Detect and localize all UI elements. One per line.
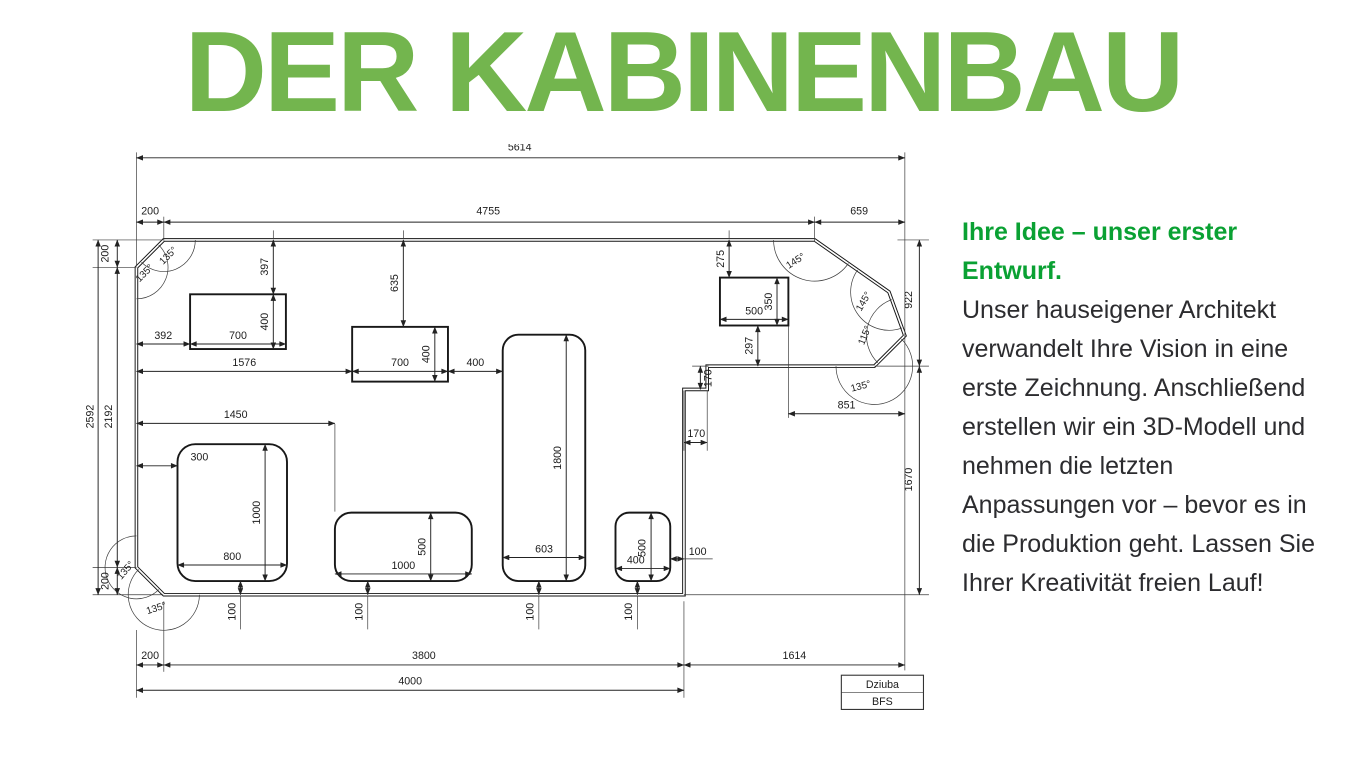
dim-rect5-height: 1000 xyxy=(251,501,263,525)
dim-top-chamfer: 200 xyxy=(141,206,159,218)
dim-rect1-height: 400 xyxy=(259,313,271,331)
dim-rect2-gap: 400 xyxy=(466,357,484,369)
dim-rect5-width: 800 xyxy=(223,551,241,563)
dim-rect4-height: 500 xyxy=(636,539,648,557)
dim-bottom-edge: 3800 xyxy=(412,650,436,662)
dim-left-chamfer-bottom: 200 xyxy=(99,572,111,590)
slide: DER KABINENBAU xyxy=(0,0,1366,768)
dimension-labels-vertical: 2592 2192 200 200 922 1670 397 400 635 4… xyxy=(85,245,916,621)
dim-rect2-width: 700 xyxy=(391,357,409,369)
dim-rect2-height: 400 xyxy=(421,345,433,363)
dim-bottom-chamfer: 200 xyxy=(141,650,159,662)
dim-bottom-gap-2: 100 xyxy=(354,603,366,621)
dim-right-upper: 922 xyxy=(903,291,915,309)
extension-lines xyxy=(93,152,929,697)
dim-rect3-offset-top: 275 xyxy=(715,250,727,268)
angle-bottom-left-b: 135° xyxy=(145,600,168,617)
dim-rect6-width: 1000 xyxy=(391,560,415,572)
dim-rect6-height: 500 xyxy=(417,538,429,556)
dim-rect1-offset: 392 xyxy=(154,330,172,342)
angle-arcs xyxy=(105,240,913,630)
dim-rect3-offset-bottom: 297 xyxy=(744,337,756,355)
side-heading: Ihre Idee – unser erster Entwurf. xyxy=(962,213,1330,291)
dim-left-wall: 2192 xyxy=(103,405,115,429)
dim-step-height: 170 xyxy=(702,369,714,387)
angle-right-115: 115° xyxy=(857,324,875,346)
title-block-author: Dziuba xyxy=(866,679,899,691)
dimension-labels: 5614 200 4755 659 392 700 1576 700 400 6… xyxy=(141,144,868,688)
angle-top-left-b: 135° xyxy=(158,245,180,267)
title-block: Dziuba BFS xyxy=(841,675,923,709)
dim-rect6-offset: 1450 xyxy=(224,409,248,421)
dim-right-lower: 1670 xyxy=(903,468,915,492)
dim-bottom-total: 4000 xyxy=(398,676,422,688)
technical-drawing: 5614 200 4755 659 392 700 1576 700 400 6… xyxy=(68,144,944,726)
side-text-panel: Ihre Idee – unser erster Entwurf. Unser … xyxy=(962,213,1330,603)
angle-right-lower: 135° xyxy=(850,379,873,395)
dim-overall-width: 5614 xyxy=(508,144,532,153)
technical-drawing-container: 5614 200 4755 659 392 700 1576 700 400 6… xyxy=(68,144,944,726)
dim-bottom-gap-1: 100 xyxy=(226,603,238,621)
dim-bottom-right: 1614 xyxy=(783,650,807,662)
cabin-outline xyxy=(136,240,904,595)
dim-top-right: 659 xyxy=(850,206,868,218)
title-block-org: BFS xyxy=(872,696,893,708)
dim-rect1-offset-top: 397 xyxy=(259,258,271,276)
page-title: DER KABINENBAU xyxy=(0,16,1366,130)
dim-left-total: 2592 xyxy=(85,405,97,429)
angle-bottom-left-a: 135° xyxy=(115,559,137,582)
dim-rect1-width: 700 xyxy=(229,330,247,342)
dim-rect5-offset: 300 xyxy=(191,452,209,464)
cutout-rect2 xyxy=(352,327,448,382)
dim-rect3-width: 500 xyxy=(745,305,763,317)
dim-top-edge: 4755 xyxy=(476,206,500,218)
dim-rect2-offset-top: 635 xyxy=(389,274,401,292)
dim-rect3-height: 350 xyxy=(763,293,775,311)
dim-rect4-gap: 100 xyxy=(689,546,707,558)
dim-step-depth: 170 xyxy=(687,428,705,440)
dimension-lines xyxy=(98,158,919,690)
dim-tall-height: 1800 xyxy=(552,446,564,470)
side-body-text: Unser hauseigener Architekt verwandelt I… xyxy=(962,291,1330,603)
angle-top-right-a: 145° xyxy=(784,251,807,271)
dim-tall-width: 603 xyxy=(535,543,553,555)
dim-left-chamfer-top: 200 xyxy=(99,245,111,263)
dim-bottom-gap-3: 100 xyxy=(525,603,537,621)
dim-bottom-gap-4: 100 xyxy=(623,603,635,621)
dim-ledge-width: 851 xyxy=(838,400,856,412)
angle-top-right-b: 145° xyxy=(854,290,874,313)
dim-rect2-offset: 1576 xyxy=(232,357,256,369)
cutout-rect3 xyxy=(720,278,788,326)
